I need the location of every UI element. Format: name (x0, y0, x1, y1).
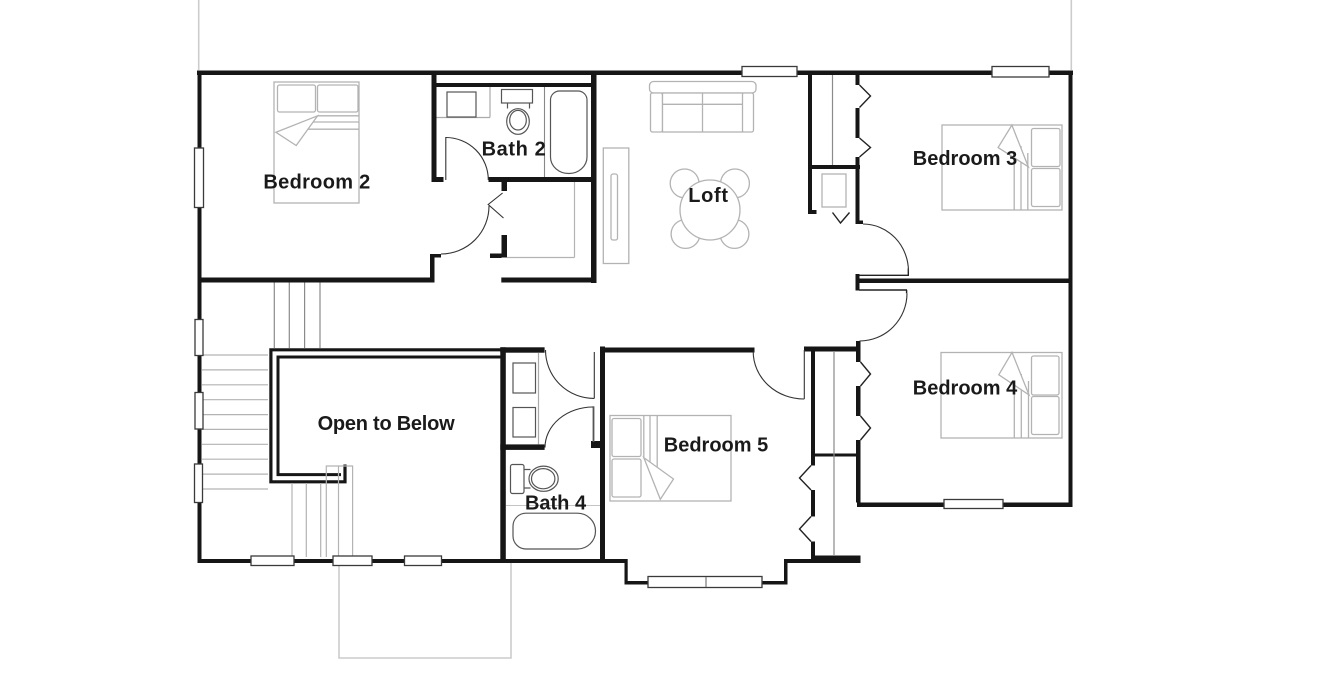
svg-text:Bedroom 3: Bedroom 3 (913, 148, 1017, 170)
svg-text:Bath 2: Bath 2 (482, 139, 547, 161)
svg-text:Bath 4: Bath 4 (525, 493, 587, 515)
svg-text:Bedroom 4: Bedroom 4 (913, 378, 1018, 400)
svg-text:Bedroom 2: Bedroom 2 (263, 172, 370, 194)
svg-text:Bedroom 5: Bedroom 5 (664, 435, 768, 457)
svg-text:Open to Below: Open to Below (318, 413, 455, 435)
svg-text:Loft: Loft (688, 185, 729, 207)
